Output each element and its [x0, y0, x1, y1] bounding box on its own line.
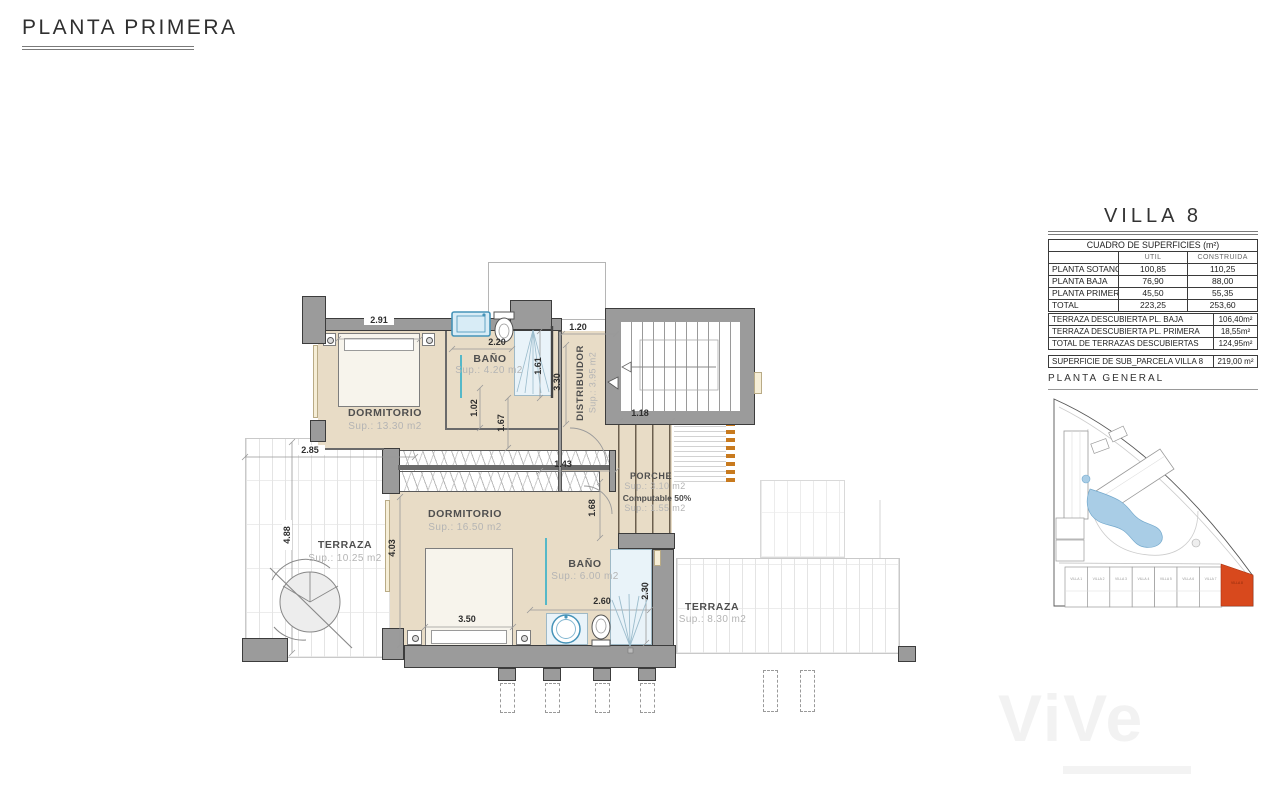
- table-row: PLANTA SOTANO 100,85 110,25: [1049, 264, 1258, 276]
- table-row: PLANTA BAJA 76,90 88,00: [1049, 276, 1258, 288]
- dim-terrace1-width: 2.85: [295, 445, 325, 455]
- siteplan-underline: [1048, 389, 1258, 390]
- wall-bottom: [404, 645, 676, 668]
- row-value: 219,00 m²: [1214, 356, 1258, 368]
- room-sup-dormitorio-2: Sup.: 16.50 m2: [405, 522, 525, 533]
- column-proj-5: [763, 670, 778, 712]
- room-label-dormitorio-2: DORMITORIO: [405, 508, 525, 520]
- row-label: TOTAL: [1049, 300, 1119, 312]
- stair-treads: [620, 322, 740, 411]
- lamp-dot-2b: [521, 635, 528, 642]
- room-label-bano-1: BAÑO: [450, 353, 530, 365]
- dim-bath1-height: 1.61: [533, 351, 543, 381]
- table-row: PLANTA PRIMERA 45,50 55,35: [1049, 288, 1258, 300]
- terraces-table: TERRAZA DESCUBIERTA PL. BAJA 106,40m² TE…: [1048, 313, 1258, 350]
- window-bath2: [654, 550, 661, 566]
- partition-bath1: [445, 331, 447, 430]
- row-util: 223,25: [1118, 300, 1188, 312]
- dim-1-67: 1.67: [496, 408, 506, 438]
- table-row: TERRAZA DESCUBIERTA PL. BAJA 106,40m²: [1049, 314, 1258, 326]
- villa-title-underline-2: [1048, 234, 1258, 235]
- watermark-subline: [1063, 766, 1191, 774]
- title-underline-2: [22, 49, 194, 50]
- terrace-right-post: [898, 646, 916, 662]
- surfaces-col-construida: CONSTRUIDA: [1188, 252, 1258, 264]
- siteplan-villa-label: VILLA 1: [1070, 577, 1082, 581]
- room-label-bano-2: BAÑO: [545, 558, 625, 570]
- siteplan-villa-label: VILLA 5: [1160, 577, 1172, 581]
- dim-1-02: 1.02: [469, 393, 479, 423]
- row-util: 76,90: [1118, 276, 1188, 288]
- dim-1-68: 1.68: [587, 493, 597, 523]
- room-label-distribuidor: DISTRIBUIDOR: [575, 333, 587, 433]
- surfaces-table-title: CUADRO DE SUPERFICIES (m²): [1049, 240, 1258, 252]
- row-value: 106,40m²: [1214, 314, 1258, 326]
- lamp-dot-1b: [426, 337, 433, 344]
- terrace-left-block: [242, 638, 288, 662]
- pillar-3: [593, 668, 611, 681]
- siteplan-villa8-highlight: [1221, 564, 1253, 606]
- villa-title-underline-1: [1048, 231, 1258, 232]
- siteplan-villa-label: VILLA 7: [1205, 577, 1217, 581]
- table-row: TOTAL DE TERRAZAS DESCUBIERTAS 124,95m²: [1049, 338, 1258, 350]
- wall-corner-tl: [302, 296, 326, 344]
- window-stair: [754, 372, 762, 394]
- lamp-dot-2a: [412, 635, 419, 642]
- wall-shower-top: [510, 300, 552, 330]
- row-label: PLANTA PRIMERA: [1049, 288, 1119, 300]
- room-sup-distribuidor: Sup.: 3.95 m2: [588, 333, 599, 433]
- page-title: PLANTA PRIMERA: [22, 16, 238, 40]
- lamp-dot-1a: [327, 337, 334, 344]
- siteplan-villa-label: VILLA 6: [1182, 577, 1194, 581]
- row-label: TERRAZA DESCUBIERTA PL. BAJA: [1049, 314, 1214, 326]
- room-sup-bano-2: Sup.: 6.00 m2: [535, 571, 635, 582]
- dim-bed1-width: 2.91: [364, 315, 394, 325]
- pillar-4: [638, 668, 656, 681]
- row-construida: 88,00: [1188, 276, 1258, 288]
- watermark-logo: ViVe: [998, 680, 1144, 756]
- column-proj-6: [800, 670, 815, 712]
- siteplan-villa8-label: VILLA 8: [1231, 581, 1243, 585]
- parcel-table: SUPERFICIE DE SUB_PARCELA VILLA 8 219,00…: [1048, 355, 1258, 368]
- column-proj-2: [545, 683, 560, 713]
- row-construida: 55,35: [1188, 288, 1258, 300]
- room-label-dormitorio-1: DORMITORIO: [325, 407, 445, 419]
- siteplan-villa-label: VILLA 4: [1137, 577, 1149, 581]
- terrace-right-upper-floor: [760, 480, 845, 558]
- dim-bath2-height: 2.30: [640, 576, 650, 606]
- dim-bath1-width: 2.20: [482, 337, 512, 347]
- room-sup-terraza-right: Sup.: 8.30 m2: [665, 614, 760, 625]
- row-value: 18,55m²: [1214, 326, 1258, 338]
- bed-2-headboard: [431, 630, 507, 644]
- bedroom1-bottom-edge: [318, 448, 384, 450]
- dim-bath2-width: 2.60: [587, 596, 617, 606]
- dim-1-18: 1.18: [625, 408, 655, 418]
- siteplan-villa-label: VILLA 3: [1115, 577, 1127, 581]
- column-proj-4: [640, 683, 655, 713]
- wall-corner-bl: [382, 628, 404, 660]
- room-sup-dormitorio-1: Sup.: 13.30 m2: [325, 421, 445, 432]
- row-construida: 110,25: [1188, 264, 1258, 276]
- room-label-terraza-right: TERRAZA: [672, 601, 752, 613]
- wall-closet-end: [609, 450, 616, 492]
- row-label: TERRAZA DESCUBIERTA PL. PRIMERA: [1049, 326, 1214, 338]
- table-row: TOTAL 223,25 253,60: [1049, 300, 1258, 312]
- wall-left-tab: [310, 420, 326, 442]
- dim-bed2-width: 3.50: [452, 614, 482, 624]
- pillar-1: [498, 668, 516, 681]
- wall-closet-pier: [382, 448, 400, 494]
- column-proj-3: [595, 683, 610, 713]
- surfaces-table: CUADRO DE SUPERFICIES (m²) UTIL CONSTRUI…: [1048, 239, 1258, 312]
- room-sup-bano-1: Sup.: 4.20 m2: [444, 365, 534, 376]
- room-label-terraza-left: TERRAZA: [305, 539, 385, 551]
- siteplan-villa-label: VILLA 2: [1093, 577, 1105, 581]
- dim-hall-width: 1.20: [563, 322, 593, 332]
- dim-terrace1-height: 4.88: [282, 520, 292, 550]
- bed-1-headboard: [344, 338, 414, 351]
- row-util: 100,85: [1118, 264, 1188, 276]
- wall-closet-band: [398, 465, 615, 470]
- row-construida: 253,60: [1188, 300, 1258, 312]
- room-sup2-porche: Sup.: 1.55 m2: [617, 503, 693, 514]
- column-proj-1: [500, 683, 515, 713]
- closet-strip-2: [398, 471, 600, 492]
- surfaces-col-empty: [1049, 252, 1119, 264]
- title-underline-1: [22, 46, 194, 47]
- row-label: PLANTA BAJA: [1049, 276, 1119, 288]
- villa-title: VILLA 8: [1048, 205, 1258, 228]
- window-bedroom1: [313, 345, 318, 418]
- surfaces-col-util: UTIL: [1118, 252, 1188, 264]
- porch-edge-strip: [726, 422, 735, 482]
- pillar-2: [543, 668, 561, 681]
- siteplan-title: PLANTA GENERAL: [1048, 373, 1164, 384]
- row-util: 45,50: [1118, 288, 1188, 300]
- floorplan-sheet: PLANTA PRIMERA ViVe: [0, 0, 1280, 800]
- room-sup-terraza-left: Sup.: 10.25 m2: [300, 553, 390, 564]
- wall-porch-corner: [618, 533, 675, 549]
- row-value: 124,95m²: [1214, 338, 1258, 350]
- room-sup1-porche: Sup.: 3.10 m2: [617, 481, 693, 492]
- row-label: TOTAL DE TERRAZAS DESCUBIERTAS: [1049, 338, 1214, 350]
- table-row: TERRAZA DESCUBIERTA PL. PRIMERA 18,55m²: [1049, 326, 1258, 338]
- dim-dist-height: 3.30: [552, 367, 562, 397]
- row-label: PLANTA SOTANO: [1049, 264, 1119, 276]
- siteplan-map: VILLA 1 VILLA 2 VILLA 3 VILLA 4 VILLA 5 …: [1048, 393, 1258, 619]
- row-label: SUPERFICIE DE SUB_PARCELA VILLA 8: [1049, 356, 1214, 368]
- dim-1-43: 1.43: [548, 459, 578, 469]
- table-row: SUPERFICIE DE SUB_PARCELA VILLA 8 219,00…: [1049, 356, 1258, 368]
- sink-counter-bath2: [546, 613, 588, 645]
